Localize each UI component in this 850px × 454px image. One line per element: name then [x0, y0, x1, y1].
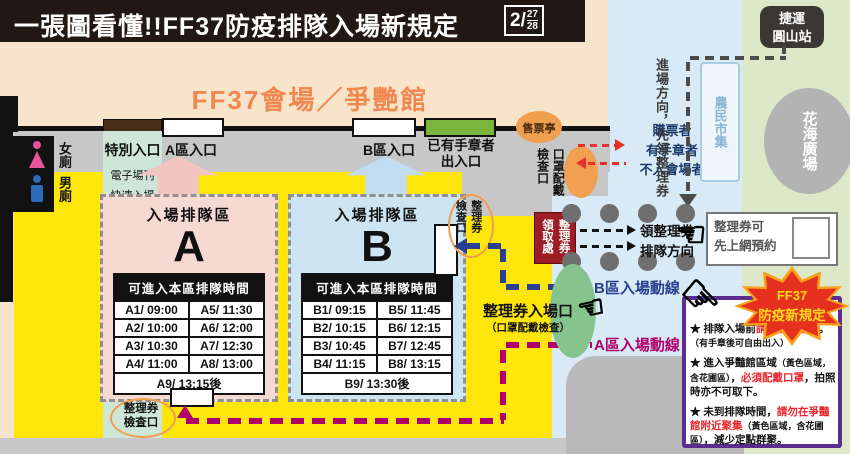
slot: B4/ 11:15: [302, 355, 377, 373]
flower-plaza-label: 花海廣場: [799, 111, 820, 171]
flower-plaza: 花海廣場: [764, 88, 850, 194]
slot: B2/ 10:15: [302, 319, 377, 337]
ticket-office: 整理券領取處: [534, 212, 576, 264]
gate-stamped: [424, 118, 496, 137]
rule-segment: ★ 未到排隊時間，: [690, 406, 777, 418]
a-route-label: A區入場動線: [594, 334, 680, 355]
building-corner: [0, 96, 18, 132]
reserve-line2: 先上網預約: [714, 239, 777, 253]
date-day2: 28: [527, 21, 538, 32]
bottom-check-line1: 整理券: [124, 403, 159, 415]
slot: A4/ 11:00: [114, 355, 189, 373]
slot: A7/ 12:30: [189, 337, 264, 355]
venue-title: FF37會場／爭艷館: [150, 80, 470, 117]
get-ticket-arrow2-head: [627, 241, 636, 251]
special-lane-title: 特別入口: [103, 140, 162, 160]
bottom-check-label: 整理券 檢查口: [112, 402, 170, 431]
mrt-station: 捷運 圓山站: [760, 6, 824, 48]
get-ticket-arrow1-head: [627, 225, 636, 235]
title-bar: 一張圖看懂!!FF37防疫排隊入場新規定 2/ 27 28: [0, 0, 585, 42]
burst-line1: FF37: [777, 288, 807, 303]
farmers-market: 農民市集: [700, 62, 740, 182]
burst-line2: 防疫新規定: [758, 308, 826, 323]
mask-check-point: [564, 146, 598, 198]
burst-text: FF37 防疫新規定: [744, 286, 840, 326]
queue-a-table: 可進入本區排隊時間 A1/ 09:00A5/ 11:30 A2/ 10:00A6…: [113, 273, 265, 395]
rule-segment: （有手章後可自由出入）: [690, 338, 789, 348]
mrt-path-arrow-head: [679, 194, 697, 207]
buyer-line3: 不入會場者: [639, 162, 704, 177]
date-month: 2/: [510, 10, 526, 32]
ground-strip: [0, 438, 612, 454]
gate-stamped-line2: 出入口: [441, 154, 482, 169]
pointing-hand-reserve-icon: ☜: [676, 218, 706, 252]
side-check-label: 整理券檢查口: [452, 200, 483, 242]
gate-stamped-line1: 已有手章者: [427, 138, 495, 153]
a-route-arrow-head: [177, 405, 193, 418]
infographic-canvas: FF37會場／爭艷館 A區入口 B區入口 已有手章者 出入口 售票亭 女廁 男廁…: [0, 0, 850, 454]
slot: A1/ 09:00: [114, 301, 189, 319]
slot: A3/ 10:30: [114, 337, 189, 355]
mrt-line1: 捷運: [779, 11, 805, 26]
queue-area-a: 入場排隊區 A 可進入本區排隊時間 A1/ 09:00A5/ 11:30 A2/…: [100, 194, 278, 402]
ticket-entrance-sub: （口罩配戴檢查）: [468, 320, 588, 335]
gate-a-label: A區入口: [150, 140, 232, 160]
gate-a: [162, 118, 224, 137]
rule-item: ★ 進入爭豔館區域（黃色區域，含花圃區），必須配戴口罩，拍照時亦不可取下。: [690, 356, 836, 399]
qr-placeholder: [792, 217, 830, 259]
bottom-check-line2: 檢查口: [124, 417, 159, 429]
date-badge: 2/ 27 28: [504, 5, 544, 36]
b-route-label: B區入場動線: [594, 277, 680, 298]
gate-stamped-label: 已有手章者 出入口: [418, 138, 504, 170]
pointing-hand-entrance-icon: ☜: [575, 292, 608, 327]
ticket-office-label: 整理券領取處: [538, 219, 571, 257]
red-arrow-in: [588, 162, 626, 165]
queue-b-table-header: 可進入本區排隊時間: [302, 274, 452, 301]
female-toilet-label: 女廁: [55, 142, 74, 168]
b-route-arrow-head: [454, 238, 467, 254]
farmers-market-label: 農民市集: [711, 96, 730, 148]
date-day1: 27: [527, 9, 538, 21]
rule-segment: 必須配戴口罩: [741, 372, 804, 384]
queue-a-letter: A: [103, 225, 275, 269]
red-arrow-in-head: [576, 157, 586, 169]
slot: A5/ 11:30: [189, 301, 264, 319]
slot: A2/ 10:00: [114, 319, 189, 337]
slot: B8/ 13:15: [377, 355, 452, 373]
gate-b: [352, 118, 416, 137]
rule-segment: ，: [731, 372, 742, 384]
b-route-seg2: [500, 249, 506, 289]
slot: A6/ 12:00: [189, 319, 264, 337]
female-icon: [28, 141, 46, 169]
mrt-path-horizontal: [690, 56, 786, 60]
ticket-entrance-label: 整理券入場口: [468, 300, 588, 321]
queue-b-table: 可進入本區排隊時間 B1/ 09:15B5/ 11:45 B2/ 10:15B6…: [301, 273, 453, 395]
mask-check-col2: 檢查口: [534, 148, 550, 216]
slot: B1/ 09:15: [302, 301, 377, 319]
red-arrow-out: [578, 144, 616, 147]
a-route-seg1: [186, 418, 504, 424]
rule-segment: ★ 進入爭豔館區域: [690, 357, 777, 369]
ticket-booth-label: 售票亭: [517, 120, 561, 136]
mask-check-col1: 口罩配戴: [550, 148, 566, 216]
a-route-seg2: [500, 350, 506, 420]
rule-item: ★ 未到排隊時間，請勿在爭豔館附近聚集（黃色區域，含花圃區），減少定點群聚。: [690, 405, 836, 448]
approach-note: 進場方向，先領整理券: [652, 58, 671, 210]
reserve-text: 整理券可 先上網預約: [714, 218, 790, 256]
mrt-line2: 圓山站: [772, 29, 811, 44]
mask-check-label: 口罩配戴 檢查口: [534, 148, 565, 216]
reserve-line1: 整理券可: [714, 220, 764, 234]
page-title: 一張圖看懂!!FF37防疫排隊入場新規定: [14, 7, 459, 43]
get-ticket-arrow1: [580, 229, 628, 232]
rule-segment: ，減少定點群聚。: [704, 434, 788, 446]
slot: B5/ 11:45: [377, 301, 452, 319]
male-toilet-label: 男廁: [55, 176, 74, 202]
mrt-path-vertical: [686, 62, 690, 194]
slot: B3/ 10:45: [302, 337, 377, 355]
date-days: 27 28: [527, 9, 538, 32]
male-icon: [28, 175, 46, 203]
slot: A8/ 13:00: [189, 355, 264, 373]
rules-list: ★ 排隊入場前請先領整理券。（有手章後可自由出入）★ 進入爭豔館區域（黃色區域，…: [690, 322, 836, 453]
red-arrow-out-head: [615, 139, 625, 151]
slot-last: B9/ 13:30後: [302, 373, 452, 394]
queue-a-table-header: 可進入本區排隊時間: [114, 274, 264, 301]
get-ticket-arrow2: [580, 245, 628, 248]
slot: B7/ 12:45: [377, 337, 452, 355]
slot: B6/ 12:15: [377, 319, 452, 337]
